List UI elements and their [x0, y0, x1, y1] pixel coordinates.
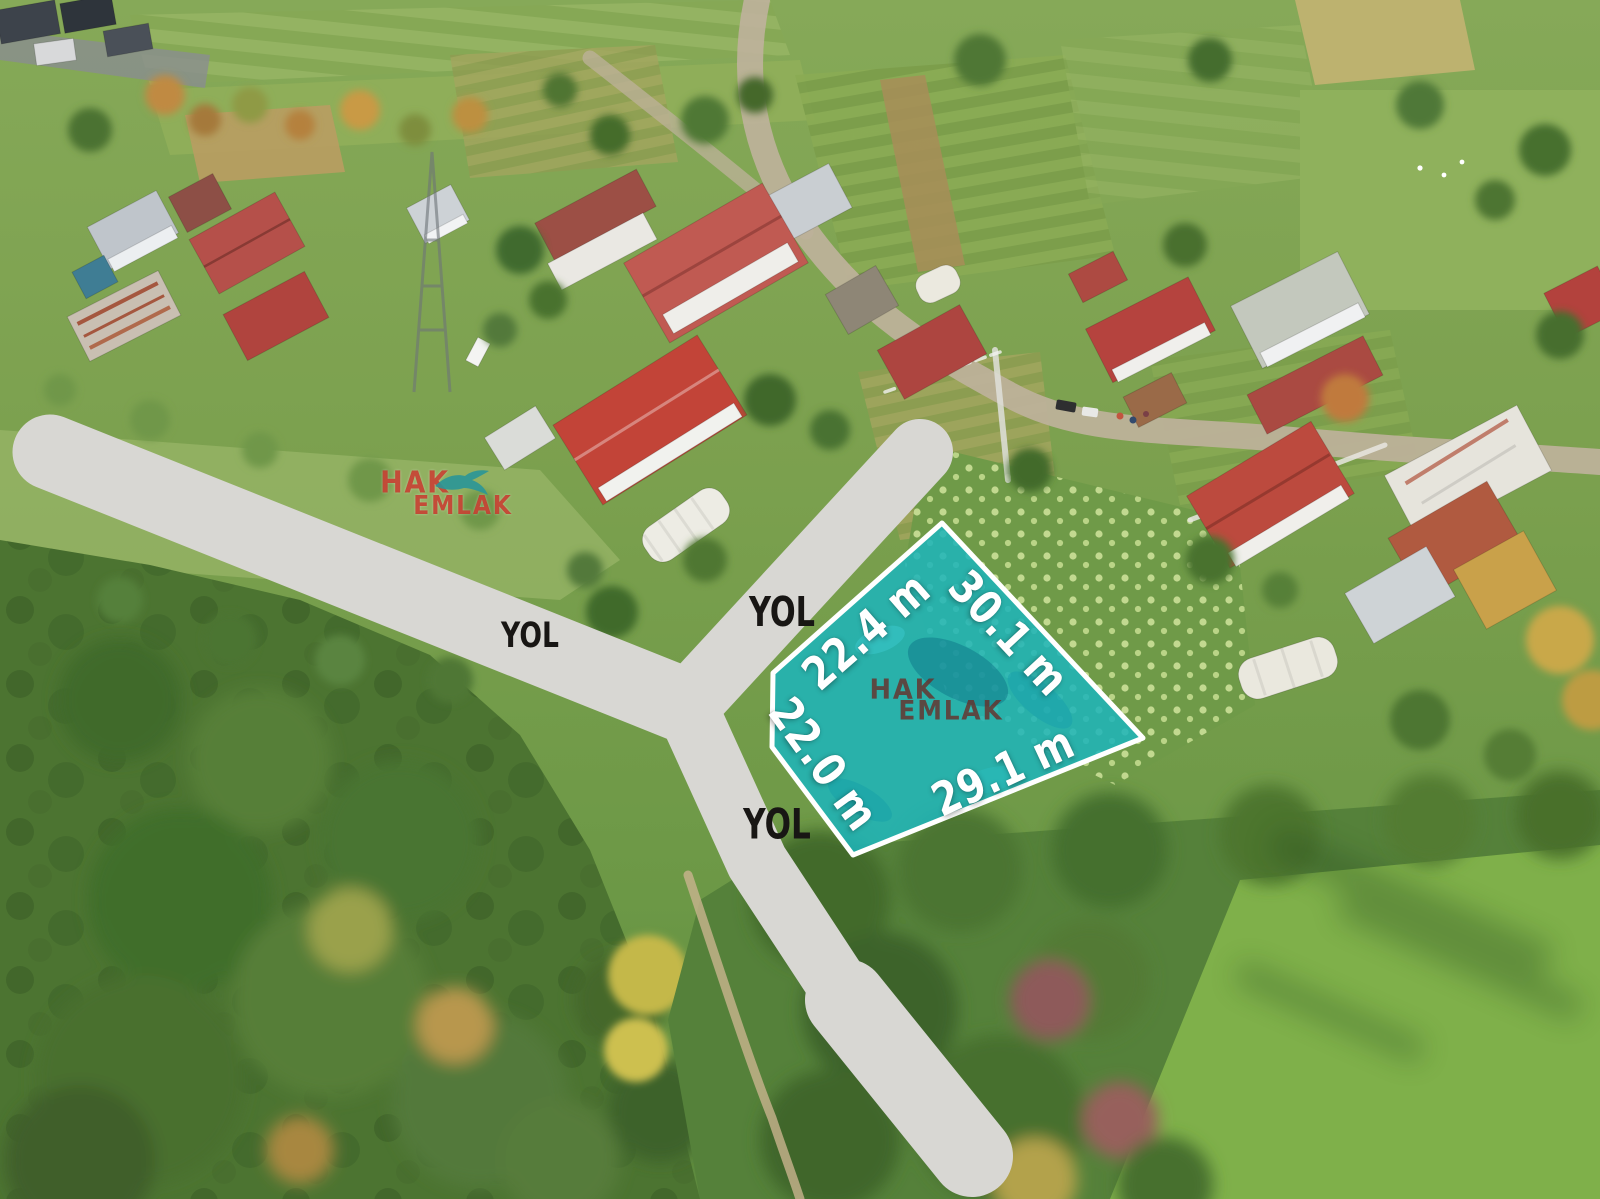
road-label-yol-center: YOL	[749, 588, 815, 636]
road-label-yol-bottom: YOL	[743, 800, 811, 849]
aerial-photo-land-listing: YOL YOL YOL 22.4 m 30.1 m 22.0 m 29.1 m …	[0, 0, 1600, 1199]
watermark-center-line2: EMLAK	[898, 696, 1003, 727]
watermark-corner-line2: EMLAK	[413, 491, 512, 521]
road-label-yol-left: YOL	[501, 616, 559, 656]
